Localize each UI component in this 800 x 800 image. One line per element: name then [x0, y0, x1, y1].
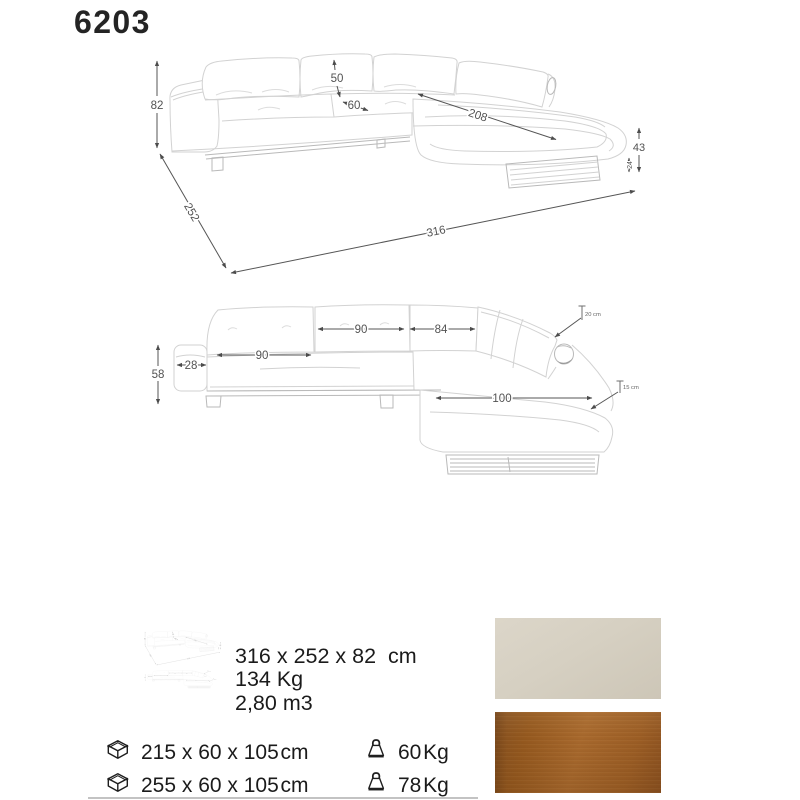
svg-text:58: 58 [152, 369, 165, 381]
svg-text:316: 316 [426, 224, 447, 240]
svg-text:20 cm: 20 cm [585, 312, 601, 318]
svg-text:82: 82 [151, 100, 164, 112]
svg-text:15 cm: 15 cm [623, 385, 639, 391]
svg-text:90: 90 [256, 350, 269, 362]
svg-text:28: 28 [185, 360, 198, 372]
svg-text:24: 24 [627, 161, 634, 169]
svg-text:43: 43 [633, 142, 645, 154]
svg-text:84: 84 [435, 324, 448, 336]
svg-text:100: 100 [492, 393, 511, 405]
svg-text:90: 90 [355, 324, 368, 336]
svg-text:50: 50 [331, 73, 344, 85]
svg-text:60: 60 [348, 100, 361, 112]
